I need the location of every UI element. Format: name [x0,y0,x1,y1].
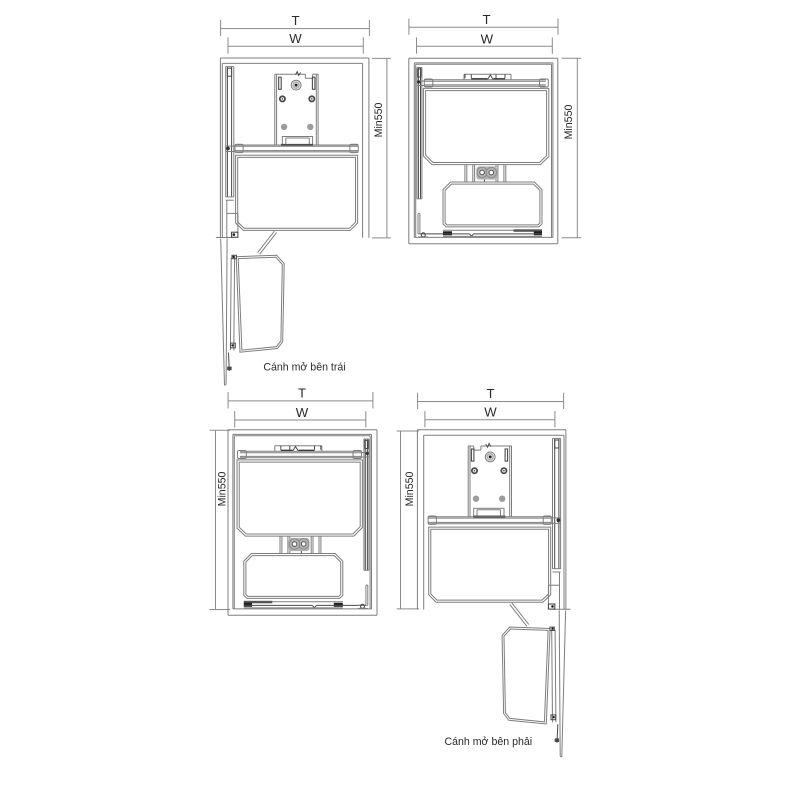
svg-text:W: W [484,405,497,420]
svg-text:T: T [298,386,306,401]
svg-text:Cánh mở bên trái: Cánh mở bên trái [263,361,345,373]
svg-text:W: W [289,31,302,46]
svg-text:T: T [291,13,299,28]
svg-text:T: T [486,386,494,401]
svg-text:Min550: Min550 [563,105,575,140]
svg-text:Min550: Min550 [404,472,416,507]
svg-text:W: W [481,32,494,47]
svg-text:Cánh mở bên phải: Cánh mở bên phải [444,736,532,748]
svg-text:W: W [296,405,309,420]
svg-text:Min550: Min550 [216,472,228,507]
svg-text:T: T [482,12,490,27]
svg-text:Min550: Min550 [373,103,385,138]
